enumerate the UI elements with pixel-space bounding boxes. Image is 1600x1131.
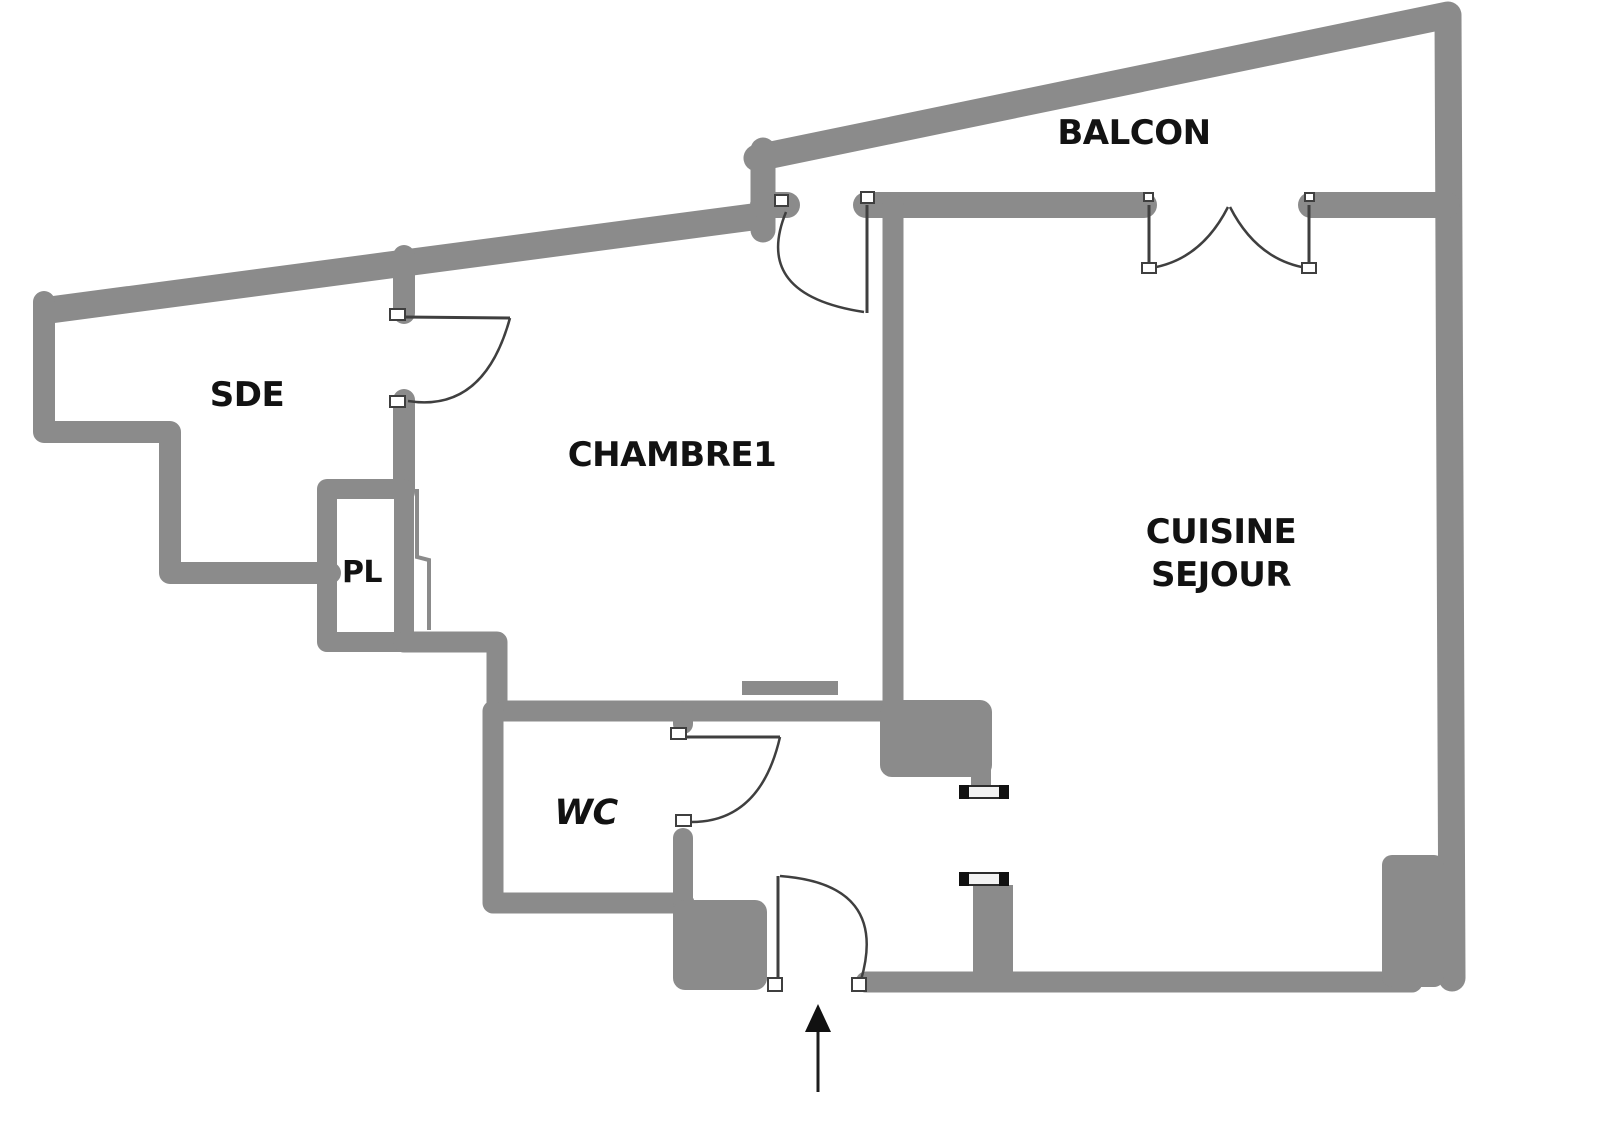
- entry-left-wall-block: [673, 900, 767, 990]
- chambre-bottom-wall: [404, 642, 893, 711]
- room-label-sejour: SEJOUR: [1151, 555, 1291, 595]
- room-label-chambre1: CHAMBRE1: [568, 435, 777, 475]
- wc-door: [671, 728, 780, 826]
- hall-cuisine-stub-wall: [973, 885, 1013, 975]
- balcony-outer-and-right-wall: [757, 15, 1452, 978]
- chambre-wall-dash: [742, 681, 838, 695]
- room-label-wc: WC: [554, 793, 618, 833]
- floor-plan: BALCON SDE CHAMBRE1 PL WC CUISINE SEJOUR: [0, 0, 1600, 1131]
- radiator-icon: [959, 872, 1009, 886]
- outer-walls: [44, 15, 1452, 982]
- entry-arrow-icon: [805, 1004, 831, 1092]
- entry-door: [768, 876, 867, 991]
- balcony-french-door: [1142, 193, 1316, 273]
- left-outer-wall-steps: [44, 302, 330, 573]
- center-pillar: [880, 700, 992, 777]
- room-label-cuisine: CUISINE: [1146, 512, 1297, 552]
- room-label-balcon: BALCON: [1057, 113, 1210, 153]
- radiator-icon: [959, 785, 1009, 799]
- floor-plan-canvas: BALCON SDE CHAMBRE1 PL WC CUISINE SEJOUR: [0, 0, 1600, 1131]
- bottom-right-pillar: [1382, 855, 1444, 987]
- radiators: [959, 785, 1009, 886]
- pl-thin-partition: [417, 489, 429, 630]
- inner-walls: [327, 205, 1447, 990]
- room-label-pl: PL: [342, 555, 382, 590]
- room-label-sde: SDE: [210, 375, 284, 415]
